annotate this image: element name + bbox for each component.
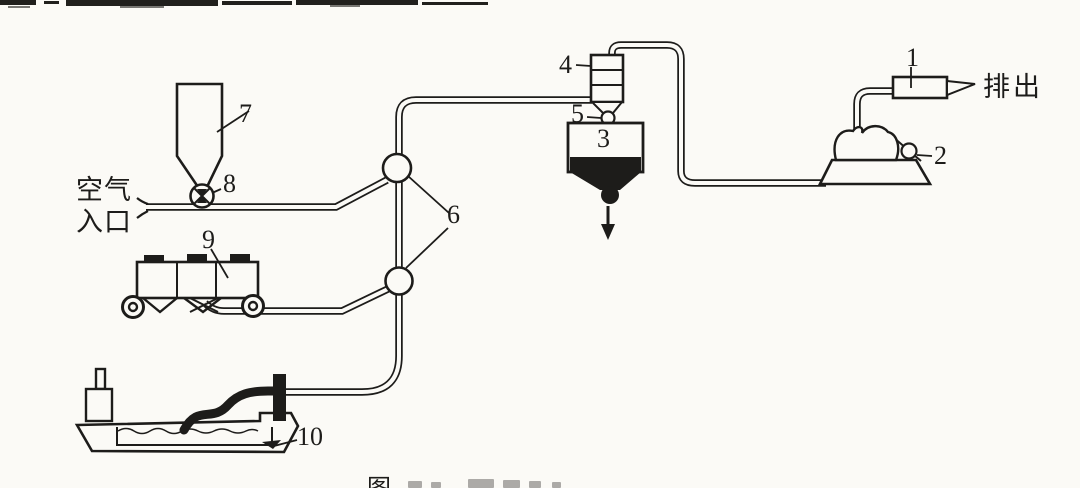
callout-1-silencer: 1 [906,45,919,71]
diagram-canvas [0,0,1080,488]
callout-5-rotary-valve: 5 [571,101,584,127]
callout-4-filter: 4 [559,52,572,78]
air-inlet-label: 空气 入口 [76,175,132,239]
pipe-blower-outlet [857,91,894,130]
railcar [123,254,264,318]
air-inlet-label-line1: 空气 [76,175,132,207]
callout-7-supply-hopper: 7 [239,101,252,127]
air-inlet-label-line2: 入口 [76,207,132,239]
blower-lobes-icon [835,126,899,160]
callout-9-railcar: 9 [202,227,215,253]
railcar-wheel-right [243,296,264,317]
blower-unit [820,126,930,184]
railcar-wheel-left [123,297,144,318]
scanned-diagram-page: 1 2 3 4 5 6 7 8 9 10 空气 入口 排出 图 [0,0,1080,488]
booster-valve-top [383,154,411,182]
pipe-air-inlet-line [146,180,387,207]
pipe-main-conveying-line [286,100,592,392]
pipelines [137,45,894,392]
material-discharge-arrow-icon [601,206,615,240]
callout-10-barge: 10 [297,424,323,450]
callout-6-booster-valves: 6 [447,202,460,228]
booster-valve-bottom [386,268,413,295]
feeder-rotary-valve-icon [191,185,214,208]
drive-pulley-icon [902,144,917,159]
callout-3-receiving-hopper: 3 [597,126,610,152]
supply-hopper [177,84,222,187]
barge [77,369,298,452]
filter-separator [591,55,623,113]
discharge-label: 排出 [983,72,1043,104]
callout-2-blower: 2 [934,143,947,169]
page-edge-artifact [0,0,488,8]
figure-caption-fragment: 图 [367,475,393,488]
callout-8-feeder-valve: 8 [223,171,236,197]
silencer [893,77,975,98]
